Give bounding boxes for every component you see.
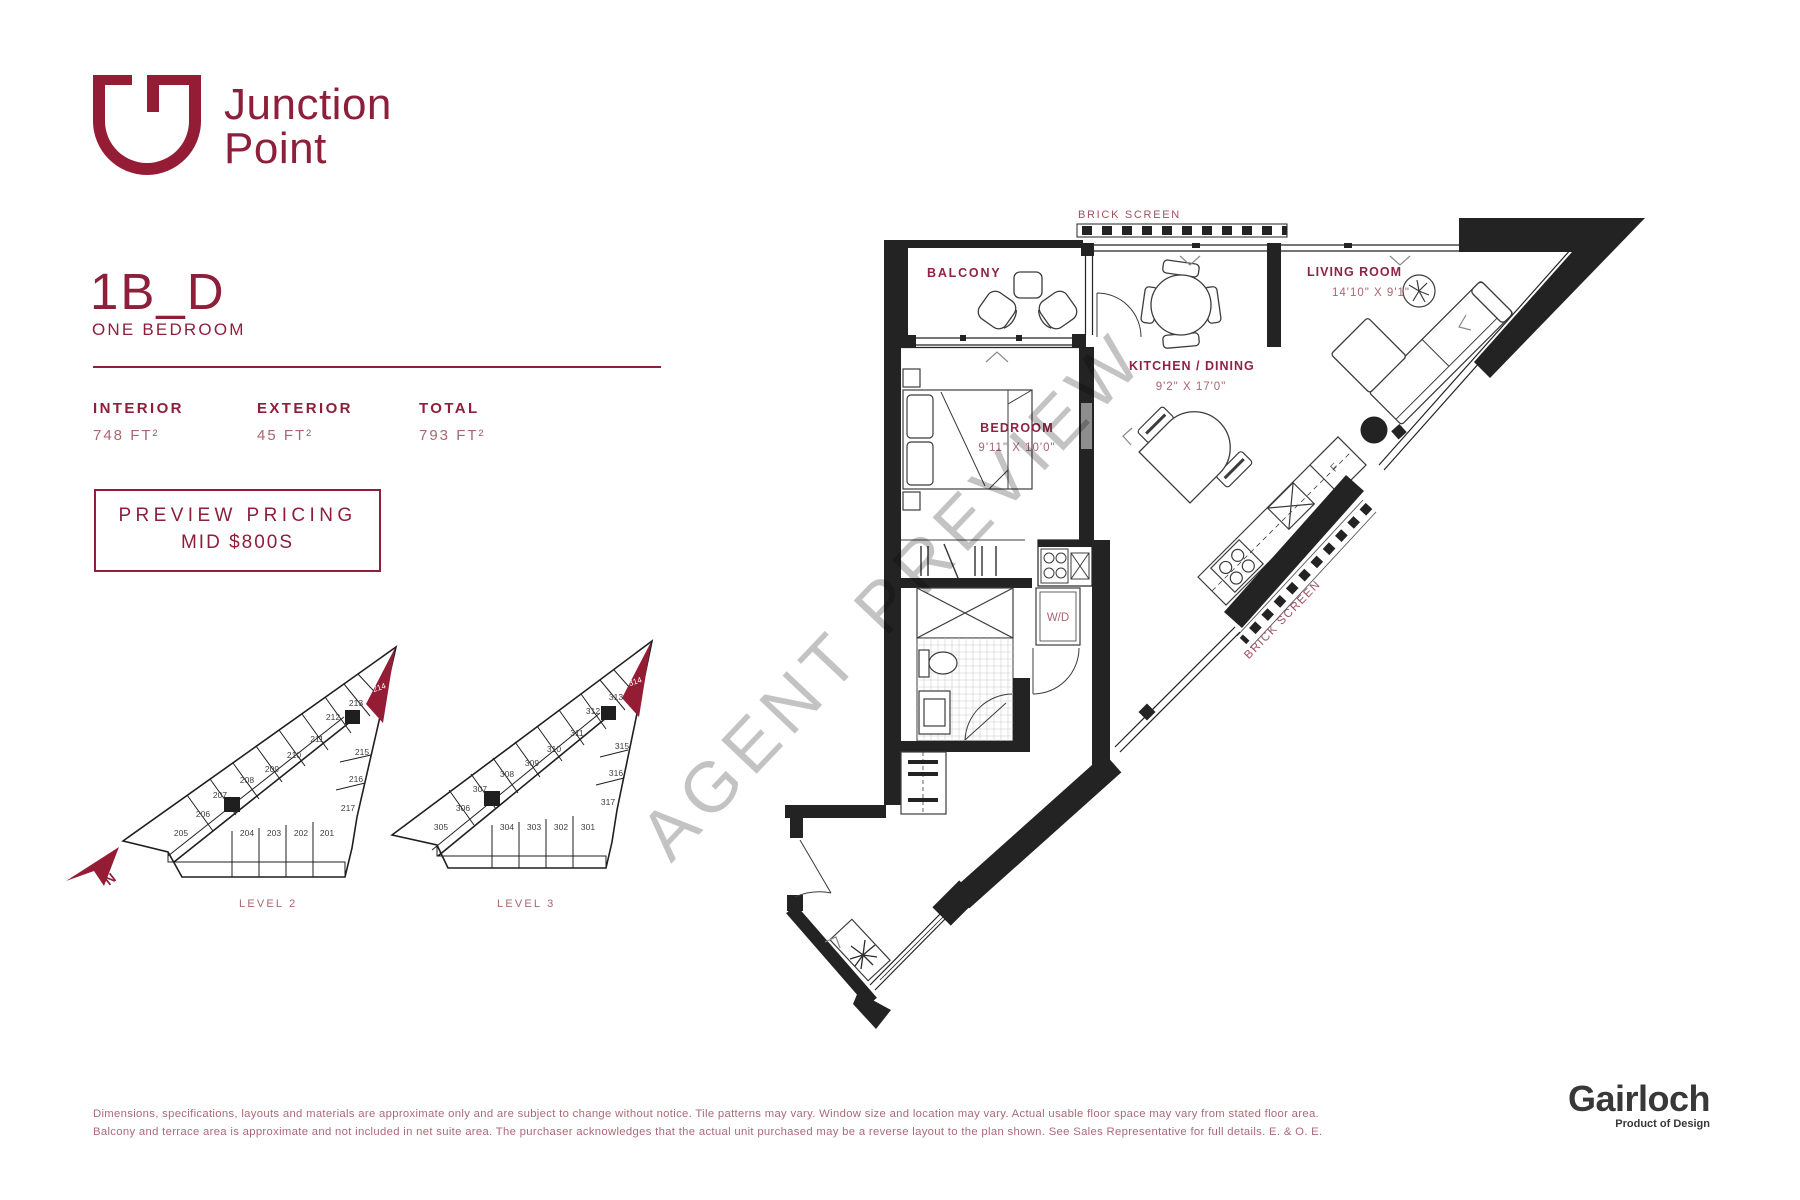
svg-text:309: 309	[525, 758, 539, 768]
svg-text:BALCONY: BALCONY	[927, 266, 1001, 280]
svg-text:212: 212	[326, 712, 340, 722]
svg-text:209: 209	[265, 764, 279, 774]
svg-text:210: 210	[287, 750, 301, 760]
svg-text:312: 312	[586, 706, 600, 716]
svg-text:9'2" X 17'0": 9'2" X 17'0"	[1156, 381, 1227, 393]
svg-text:LIVING ROOM: LIVING ROOM	[1307, 265, 1402, 279]
svg-text:301: 301	[581, 822, 595, 832]
svg-text:304: 304	[500, 822, 514, 832]
svg-text:211: 211	[310, 734, 324, 744]
svg-text:BRICK SCREEN: BRICK SCREEN	[1078, 209, 1181, 221]
svg-text:311: 311	[570, 728, 584, 738]
svg-text:204: 204	[240, 828, 254, 838]
svg-text:14'10" X 9'1": 14'10" X 9'1"	[1332, 287, 1410, 299]
svg-text:203: 203	[267, 828, 281, 838]
svg-text:307: 307	[473, 784, 487, 794]
svg-text:206: 206	[196, 809, 210, 819]
svg-text:315: 315	[615, 741, 629, 751]
svg-text:205: 205	[174, 828, 188, 838]
svg-text:207: 207	[213, 790, 227, 800]
svg-text:308: 308	[500, 769, 514, 779]
svg-text:302: 302	[554, 822, 568, 832]
svg-text:310: 310	[547, 744, 561, 754]
svg-text:213: 213	[349, 698, 363, 708]
svg-text:208: 208	[240, 775, 254, 785]
svg-text:306: 306	[456, 803, 470, 813]
svg-text:303: 303	[527, 822, 541, 832]
svg-text:216: 216	[349, 774, 363, 784]
svg-text:317: 317	[601, 797, 615, 807]
svg-text:316: 316	[609, 768, 623, 778]
svg-text:201: 201	[320, 828, 334, 838]
svg-text:217: 217	[341, 803, 355, 813]
svg-text:305: 305	[434, 822, 448, 832]
svg-text:W/D: W/D	[1047, 612, 1069, 624]
svg-text:313: 313	[609, 692, 623, 702]
svg-text:215: 215	[355, 747, 369, 757]
svg-text:202: 202	[294, 828, 308, 838]
